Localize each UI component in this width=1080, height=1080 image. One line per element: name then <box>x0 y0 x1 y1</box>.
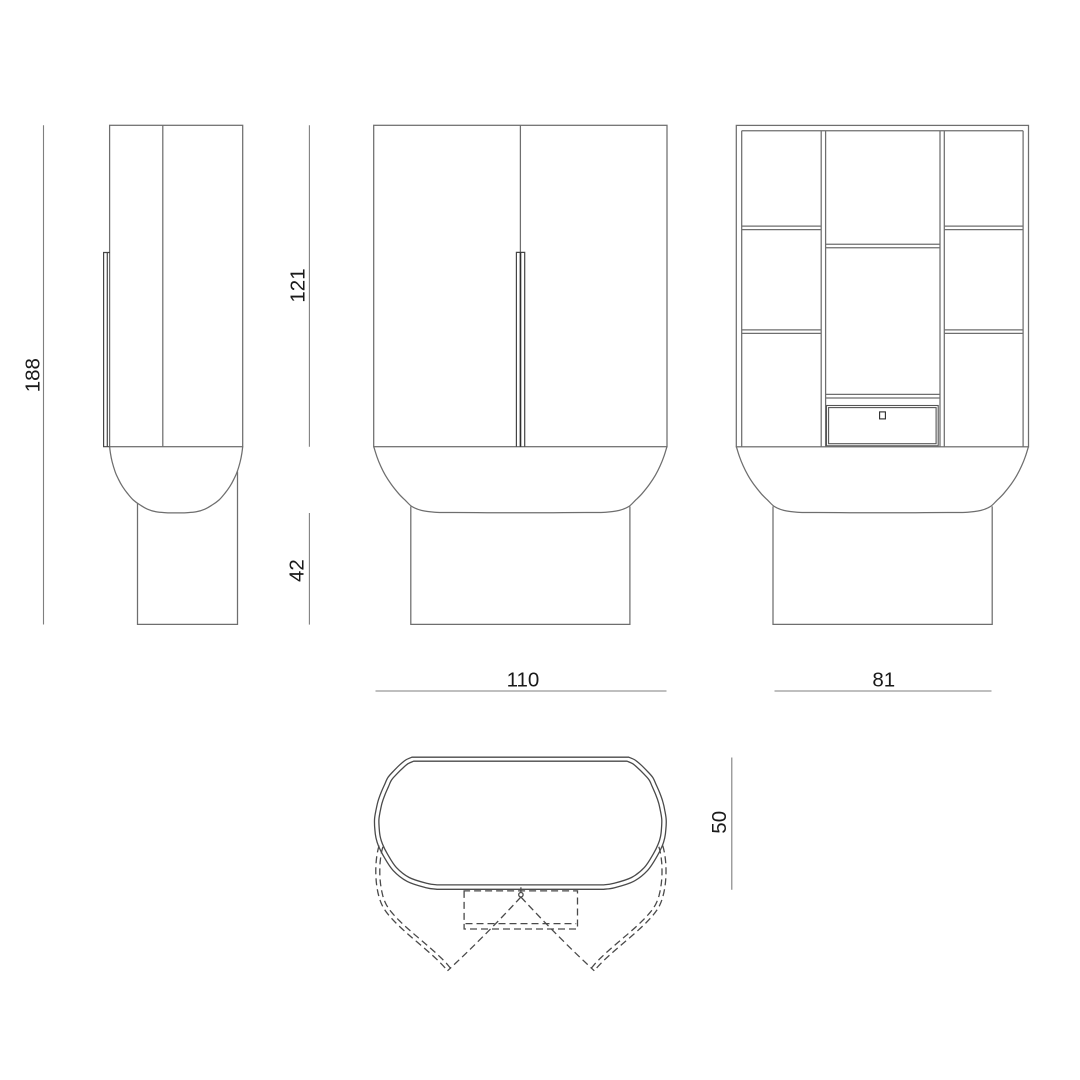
svg-text:188: 188 <box>21 358 44 392</box>
svg-text:121: 121 <box>287 268 310 302</box>
svg-text:81: 81 <box>872 669 895 692</box>
svg-text:50: 50 <box>708 811 731 834</box>
svg-text:42: 42 <box>286 559 309 582</box>
svg-text:110: 110 <box>507 669 540 692</box>
